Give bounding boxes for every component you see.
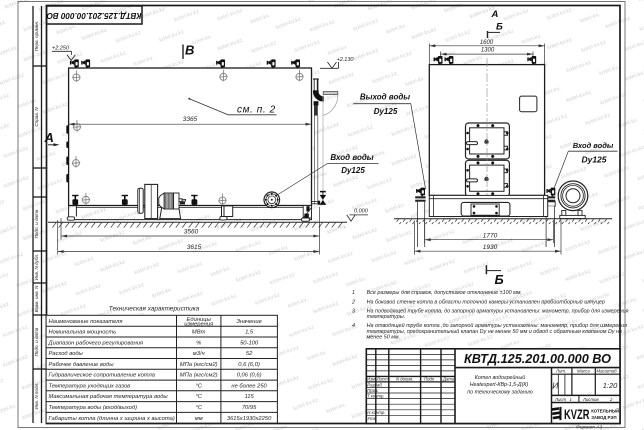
- svg-text:1600: 1600: [480, 40, 494, 46]
- svg-text:Расход воды: Расход воды: [49, 351, 84, 357]
- svg-text:Формат А3: Формат А3: [576, 424, 603, 430]
- svg-text:Габариты котла (длинна х ширин: Габариты котла (длинна х ширина х высота…: [49, 416, 175, 422]
- svg-text:Подп. и дата: Подп. и дата: [34, 209, 39, 238]
- svg-text:Лист: Лист: [376, 377, 388, 382]
- svg-text:3: 3: [352, 308, 355, 314]
- svg-text:температуры.: температуры.: [367, 314, 406, 320]
- svg-text:%: %: [196, 340, 201, 346]
- svg-text:+2.130: +2.130: [337, 57, 355, 63]
- svg-text:70/95: 70/95: [242, 405, 257, 411]
- svg-text:Перв. примен.: Перв. примен.: [34, 21, 39, 52]
- svg-text:Б: Б: [496, 22, 503, 33]
- svg-text:Лист: Лист: [554, 397, 566, 402]
- svg-text:На боковой стенке котла в обла: На боковой стенке котла в области топочн…: [367, 299, 605, 306]
- svg-text:Масштаб: Масштаб: [597, 369, 618, 374]
- svg-text:Номинальная мощность: Номинальная мощность: [49, 330, 117, 336]
- svg-text:Справ. N: Справ. N: [34, 107, 39, 127]
- svg-text:°С: °С: [195, 405, 202, 411]
- svg-text:И: И: [552, 381, 559, 391]
- svg-text:1:20: 1:20: [603, 381, 618, 390]
- svg-text:0.000: 0.000: [354, 209, 369, 215]
- svg-text:измерения: измерения: [184, 322, 213, 328]
- svg-text:+2.250: +2.250: [52, 46, 70, 52]
- svg-text:Heatexpert-КВр-1,5-Д(К): Heatexpert-КВр-1,5-Д(К): [470, 382, 529, 388]
- svg-text:Б: Б: [495, 272, 504, 287]
- svg-text:Разраб.: Разраб.: [367, 382, 383, 387]
- svg-text:Т.контр.: Т.контр.: [367, 394, 384, 399]
- svg-text:°С: °С: [195, 383, 202, 389]
- svg-text:МПа (кгс/см2): МПа (кгс/см2): [180, 373, 218, 379]
- svg-text:м3/ч: м3/ч: [193, 351, 205, 357]
- svg-text:Dy125: Dy125: [374, 107, 398, 116]
- svg-text:3615х1930х2250: 3615х1930х2250: [227, 416, 272, 422]
- svg-text:Выход воды: Выход воды: [360, 93, 410, 102]
- svg-text:Лит.: Лит.: [555, 369, 566, 374]
- svg-text:Утв.: Утв.: [367, 416, 377, 421]
- svg-text:1: 1: [352, 290, 355, 296]
- svg-text:1930: 1930: [483, 244, 498, 251]
- svg-text:Максимальная рабочая температу: Максимальная рабочая температура воды: [49, 394, 169, 400]
- svg-text:КВТД.125.201.00.000 ВО: КВТД.125.201.00.000 ВО: [464, 351, 611, 366]
- svg-text:Температура воды (вход/выход): Температура воды (вход/выход): [49, 405, 138, 411]
- svg-text:Взам. инв. N: Взам. инв. N: [34, 285, 39, 312]
- svg-text:3365: 3365: [183, 116, 198, 123]
- svg-text:Котел водогрейный: Котел водогрейный: [475, 374, 525, 381]
- svg-text:МПа (кгс/см2): МПа (кгс/см2): [180, 362, 218, 368]
- svg-text:менее 50 мм.: менее 50 мм.: [367, 335, 401, 341]
- svg-text:N докум.: N докум.: [396, 377, 413, 382]
- svg-text:KVZR: KVZR: [564, 406, 590, 422]
- svg-text:°С: °С: [195, 394, 202, 400]
- svg-text:по техническому заданию: по техническому заданию: [467, 390, 532, 396]
- svg-text:1300: 1300: [481, 48, 495, 54]
- svg-text:Диапазон рабочего регулировани: Диапазон рабочего регулирования: [48, 340, 144, 346]
- svg-text:Подп: Подп: [424, 377, 435, 382]
- svg-text:На подводящей трубе котла, д: На подводящей трубе котла, до запорной а…: [367, 307, 629, 314]
- svg-text:Рабочее давление воды: Рабочее давление воды: [49, 362, 115, 368]
- svg-text:мм: мм: [195, 416, 203, 422]
- svg-text:температуры, предохранительный: температуры, предохранительный клапан Dy…: [367, 328, 622, 335]
- svg-text:50-100: 50-100: [240, 340, 259, 346]
- svg-text:4: 4: [352, 323, 355, 329]
- svg-text:Н.контр.: Н.контр.: [367, 410, 385, 415]
- svg-text:115: 115: [244, 394, 254, 400]
- svg-text:Масса: Масса: [577, 369, 590, 374]
- svg-text:Значение: Значение: [236, 319, 262, 325]
- svg-text:Dy125: Dy125: [581, 154, 606, 164]
- svg-text:МВт: МВт: [192, 330, 206, 336]
- svg-text:52: 52: [246, 351, 253, 357]
- svg-text:1770: 1770: [483, 232, 498, 239]
- svg-text:Пров.: Пров.: [367, 388, 378, 393]
- svg-text:Температура уходящих газов: Температура уходящих газов: [49, 383, 131, 389]
- svg-text:3560: 3560: [184, 229, 199, 236]
- svg-text:Листов: Листов: [582, 397, 599, 402]
- svg-text:Дата: Дата: [442, 377, 455, 382]
- svg-text:Вход воды: Вход воды: [573, 141, 614, 150]
- svg-text:КВТД.125.201.00.000 ВО: КВТД.125.201.00.000 ВО: [46, 11, 142, 20]
- svg-text:Инв. N дубл.: Инв. N дубл.: [34, 254, 39, 281]
- svg-text:ЗАВОД РЭП: ЗАВОД РЭП: [591, 415, 616, 420]
- svg-text:В: В: [185, 43, 194, 58]
- svg-text:КОТЕЛЬНЫЙ: КОТЕЛЬНЫЙ: [591, 409, 619, 414]
- svg-text:Наименование показателя: Наименование показателя: [49, 319, 123, 325]
- svg-text:Dy125: Dy125: [341, 166, 365, 175]
- svg-text:0,06 (0,6): 0,06 (0,6): [237, 373, 262, 379]
- svg-text:Инв. N подл.: Инв. N подл.: [34, 383, 39, 410]
- svg-text:Подп. и дата: Подп. и дата: [34, 327, 39, 356]
- svg-text:Все размеры для справок, допус: Все размеры для справок, допустимое откл…: [367, 290, 522, 296]
- svg-text:Техническая характеристика: Техническая характеристика: [109, 306, 200, 313]
- svg-text:см. п. 2: см. п. 2: [237, 104, 276, 115]
- svg-text:Изм: Изм: [367, 377, 375, 382]
- svg-text:Вход воды: Вход воды: [330, 153, 373, 162]
- svg-text:А: А: [44, 130, 54, 145]
- svg-text:А: А: [491, 9, 499, 20]
- svg-text:1,5: 1,5: [245, 330, 254, 336]
- svg-text:3615: 3615: [187, 244, 202, 251]
- svg-text:Гидравлическое сопротивление к: Гидравлическое сопротивление котла: [49, 373, 156, 379]
- svg-text:2: 2: [351, 300, 355, 306]
- svg-text:0,6 (6,0): 0,6 (6,0): [238, 362, 260, 368]
- svg-text:не более 250: не более 250: [231, 383, 267, 389]
